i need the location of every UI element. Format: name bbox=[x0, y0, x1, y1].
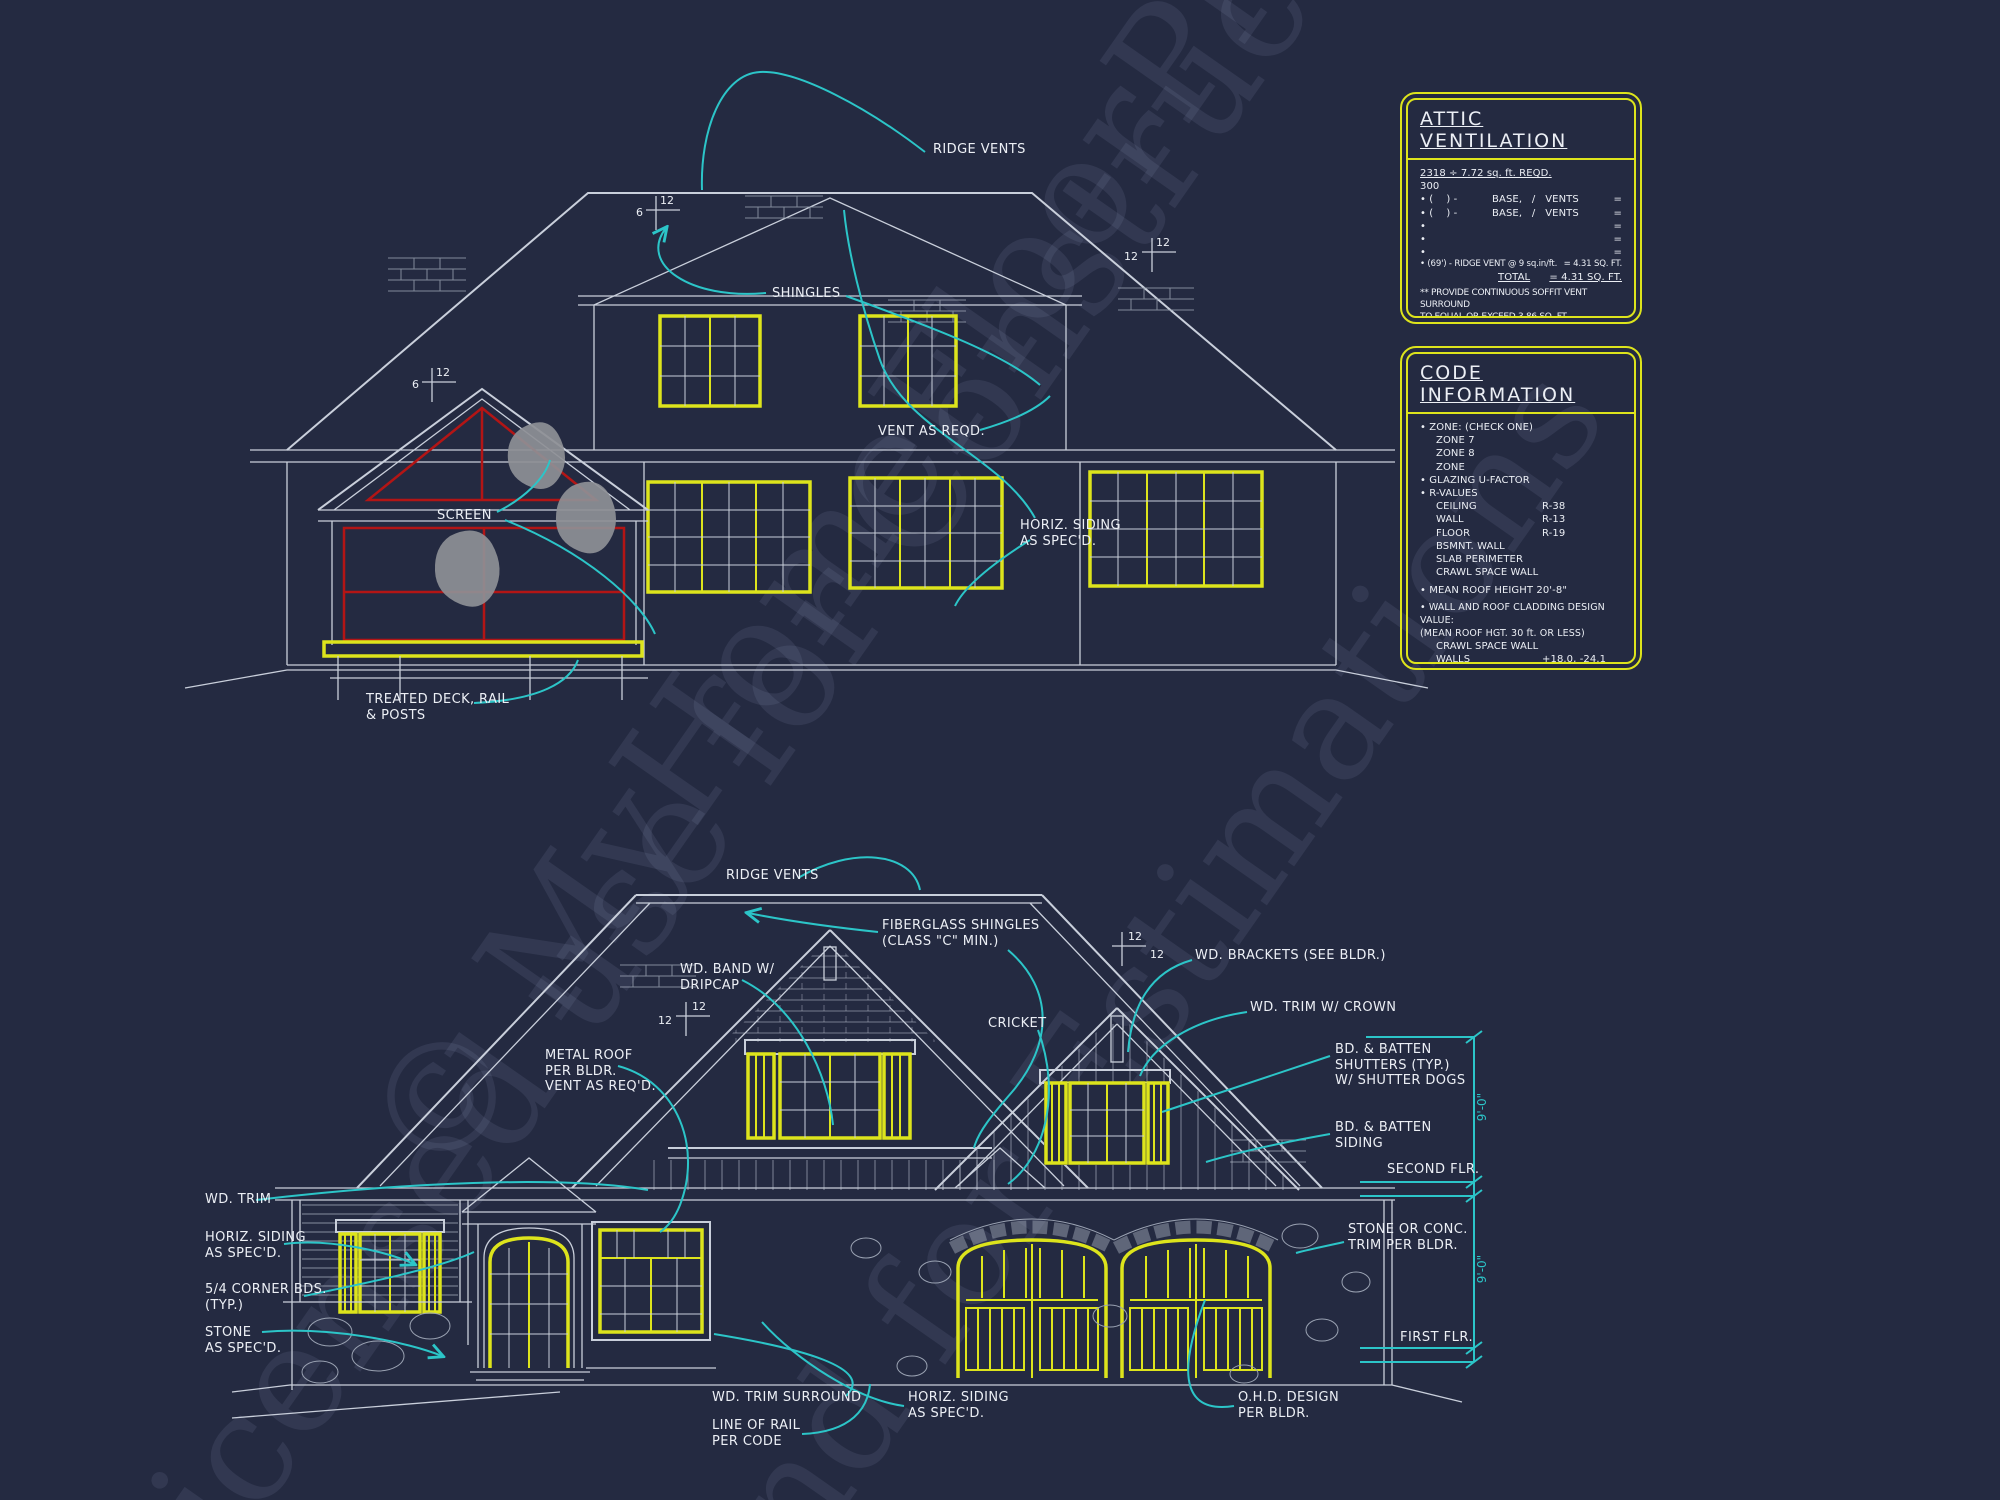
panel-title: ATTIC VENTILATION bbox=[1420, 108, 1622, 152]
pitch-rise: 12 bbox=[1124, 250, 1138, 263]
stone-texture bbox=[851, 1224, 1370, 1383]
rvalue-row: CEILINGR-38 bbox=[1420, 500, 1622, 513]
rear-elevation-linework bbox=[185, 72, 1428, 703]
label-wd-trim-surround: WD. TRIM SURROUND bbox=[712, 1390, 861, 1406]
window-with-shutters bbox=[748, 1054, 910, 1138]
dimension-text: 9'-0" bbox=[1475, 1093, 1489, 1121]
label-wd-band: WD. BAND W/ DRIPCAP bbox=[680, 962, 774, 993]
entry-porch bbox=[462, 1158, 596, 1380]
label-screen: SCREEN bbox=[437, 508, 492, 524]
code-cladding-header: • WALL AND ROOF CLADDING DESIGN VALUE: bbox=[1420, 602, 1622, 627]
garage bbox=[851, 1200, 1392, 1385]
label-fiberglass-shingles: FIBERGLASS SHINGLES (CLASS "C" MIN.) bbox=[882, 918, 1040, 949]
window bbox=[648, 472, 1262, 592]
attic-req-value: 300 bbox=[1420, 180, 1622, 193]
attic-note: ** PROVIDE CONTINUOUS SOFFIT VENT SURROU… bbox=[1420, 288, 1622, 318]
label-ohd-design: O.H.D. DESIGN PER BLDR. bbox=[1238, 1390, 1339, 1421]
pitch-run: 12 bbox=[692, 1000, 706, 1013]
label-stone-conc-trim: STONE OR CONC. TRIM PER BLDR. bbox=[1348, 1222, 1468, 1253]
label-first-flr: FIRST FLR. bbox=[1400, 1330, 1473, 1345]
label-metal-roof: METAL ROOF PER BLDR. VENT AS REQ'D. bbox=[545, 1048, 656, 1095]
attic-req-line: 2318 ÷ 7.72 sq. ft. REQD. bbox=[1420, 167, 1622, 180]
label-vent-as-reqd: VENT AS REQD. bbox=[878, 424, 985, 440]
dimension-text: 9'-0" bbox=[1475, 1255, 1489, 1283]
code-zone: ZONE bbox=[1420, 461, 1622, 474]
window-with-surround bbox=[586, 1222, 716, 1368]
label-cricket: CRICKET bbox=[988, 1016, 1047, 1032]
attic-row: • ( ) -BASE, / VENTS= bbox=[1420, 193, 1622, 206]
code-zone: ZONE 8 bbox=[1420, 447, 1622, 460]
foliage-blob bbox=[556, 482, 616, 554]
label-stone: STONE AS SPEC'D. bbox=[205, 1325, 281, 1356]
attic-total-row: TOTAL= 4.31 SQ. FT. bbox=[1420, 271, 1622, 284]
window-header bbox=[745, 1040, 915, 1054]
cladding-row: WALLS+18.0, -24.1 bbox=[1420, 653, 1622, 664]
attic-row: •= bbox=[1420, 246, 1622, 259]
rvalue-row: BSMNT. WALL bbox=[1420, 540, 1622, 553]
brick-hatch bbox=[388, 196, 1194, 322]
label-wd-brackets: WD. BRACKETS (SEE BLDR.) bbox=[1195, 948, 1386, 964]
label-treated-deck: TREATED DECK, RAIL & POSTS bbox=[366, 692, 509, 723]
code-information-panel: CODE INFORMATION • ZONE: (CHECK ONE) ZON… bbox=[1400, 346, 1642, 670]
grade-line bbox=[185, 670, 1428, 688]
rvalue-row: FLOORR-19 bbox=[1420, 527, 1622, 540]
divider bbox=[1408, 158, 1634, 160]
code-zone: ZONE 7 bbox=[1420, 434, 1622, 447]
pitch-rise: 12 bbox=[658, 1014, 672, 1027]
panel-title: CODE INFORMATION bbox=[1420, 362, 1622, 406]
label-bd-batten-siding: BD. & BATTEN SIDING bbox=[1335, 1120, 1432, 1151]
label-horiz-siding-bottom: HORIZ. SIDING AS SPEC'D. bbox=[908, 1390, 1009, 1421]
attic-ridge-row: • (69') - RIDGE VENT @ 9 sq.in/ft.= 4.31… bbox=[1420, 259, 1622, 270]
cladding-row: CRAWL SPACE WALL bbox=[1420, 640, 1622, 653]
garage-door bbox=[958, 1240, 1106, 1378]
pitch-rise: 6 bbox=[636, 206, 643, 219]
leader-lines bbox=[474, 72, 1050, 703]
label-bd-batten-shutters: BD. & BATTEN SHUTTERS (TYP.) W/ SHUTTER … bbox=[1335, 1042, 1466, 1089]
screened-porch bbox=[318, 389, 648, 700]
label-shingles: SHINGLES bbox=[772, 286, 841, 302]
code-rvalues-header: • R-VALUES bbox=[1420, 487, 1622, 500]
attic-row: • ( ) -BASE, / VENTS= bbox=[1420, 207, 1622, 220]
label-horiz-siding: HORIZ. SIDING AS SPEC'D. bbox=[1020, 518, 1121, 549]
label-horiz-siding-left: HORIZ. SIDING AS SPEC'D. bbox=[205, 1230, 306, 1261]
label-wd-trim: WD. TRIM bbox=[205, 1192, 271, 1208]
front-elevation-linework bbox=[232, 857, 1482, 1434]
label-second-flr: SECOND FLR. bbox=[1387, 1162, 1480, 1177]
blueprint-page: { "colors":{"bg":"#242a41","line":"#c9cf… bbox=[0, 0, 2000, 1500]
pitch-rise: 12 bbox=[1150, 948, 1164, 961]
stone-texture bbox=[302, 1313, 450, 1383]
attic-row: •= bbox=[1420, 220, 1622, 233]
pitch-run: 12 bbox=[660, 194, 674, 207]
code-zone-header: • ZONE: (CHECK ONE) bbox=[1420, 421, 1622, 434]
divider bbox=[1408, 412, 1634, 414]
foliage-blob bbox=[435, 531, 500, 607]
label-ridge-vents: RIDGE VENTS bbox=[726, 868, 819, 884]
deck-band bbox=[324, 642, 642, 656]
garage-door bbox=[1122, 1240, 1270, 1378]
code-glazing: • GLAZING U-FACTOR bbox=[1420, 474, 1622, 487]
label-ridge-vents: RIDGE VENTS bbox=[933, 142, 1026, 158]
label-wd-trim-crown: WD. TRIM W/ CROWN bbox=[1250, 1000, 1396, 1016]
elevation-linework: .w1{stroke:var(--line);stroke-width:1.3;… bbox=[0, 0, 2000, 1500]
rvalue-row: SLAB PERIMETER bbox=[1420, 553, 1622, 566]
window-with-shutters bbox=[1044, 1083, 1170, 1165]
rvalue-row: WALLR-13 bbox=[1420, 513, 1622, 526]
shingle-texture bbox=[612, 950, 1048, 1042]
window bbox=[660, 316, 956, 406]
label-line-of-rail: LINE OF RAIL PER CODE bbox=[712, 1418, 800, 1449]
label-corner-bds: 5/4 CORNER BDS. (TYP.) bbox=[205, 1282, 327, 1313]
foliage-blob bbox=[508, 422, 565, 489]
attic-ventilation-panel: ATTIC VENTILATION 2318 ÷ 7.72 sq. ft. RE… bbox=[1400, 92, 1642, 324]
code-cladding-sub: (MEAN ROOF HGT. 30 ft. OR LESS) bbox=[1420, 628, 1622, 641]
attic-row: •= bbox=[1420, 233, 1622, 246]
rvalue-row: CRAWL SPACE WALL bbox=[1420, 566, 1622, 579]
pitch-run: 12 bbox=[1156, 236, 1170, 249]
code-mean-roof: • MEAN ROOF HEIGHT 20'-8" bbox=[1420, 584, 1622, 597]
pitch-run: 12 bbox=[436, 366, 450, 379]
pitch-run: 12 bbox=[1128, 930, 1142, 943]
pitch-rise: 6 bbox=[412, 378, 419, 391]
